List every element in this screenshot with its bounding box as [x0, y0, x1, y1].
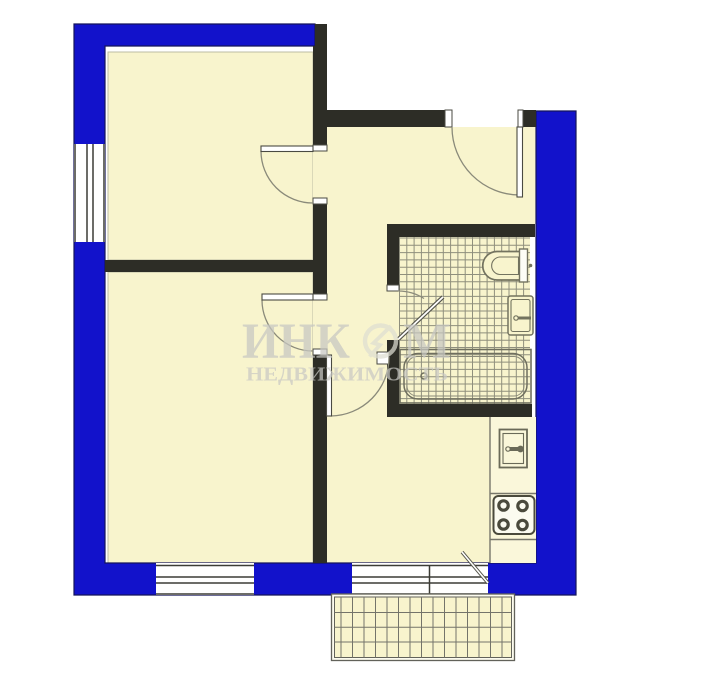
- svg-text:ИНК: ИНК: [242, 314, 350, 370]
- svg-text:НЕДВИЖИМОСТЬ: НЕДВИЖИМОСТЬ: [246, 365, 448, 386]
- svg-text:М: М: [403, 314, 451, 370]
